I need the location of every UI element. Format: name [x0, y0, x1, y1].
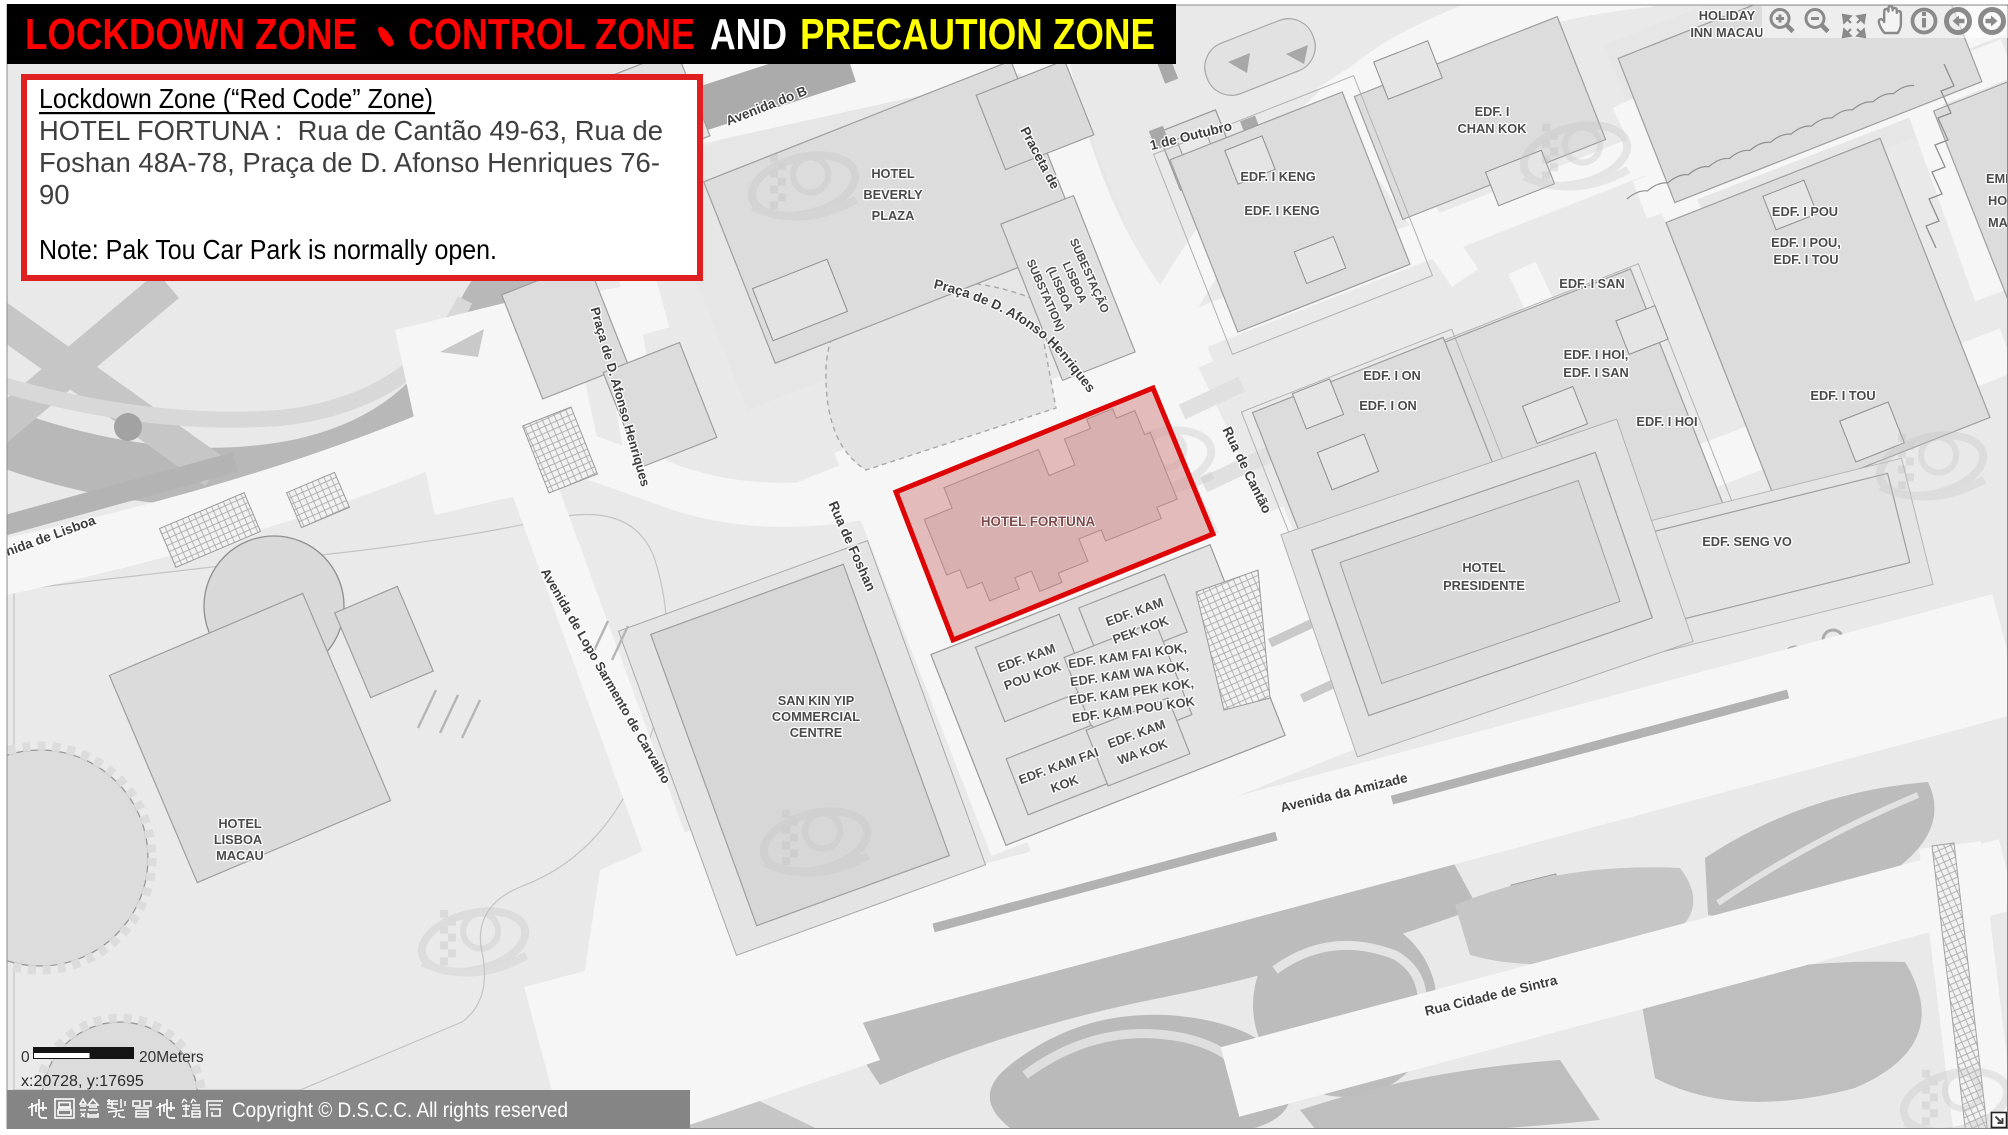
svg-text:CENTRE: CENTRE [790, 725, 843, 740]
svg-text:HO: HO [1988, 193, 2007, 208]
svg-text:HOTEL FORTUNA: HOTEL FORTUNA [981, 514, 1096, 529]
svg-text:x:20728, y:17695: x:20728, y:17695 [21, 1073, 144, 1090]
svg-text:EDF. I POU: EDF. I POU [1772, 204, 1838, 219]
svg-text:HOTEL FORTUNA : Rua de Cantão: HOTEL FORTUNA : Rua de Cantão 49-63, Rua… [39, 115, 663, 146]
svg-text:LISBOA: LISBOA [214, 832, 262, 847]
svg-text:CONTROL ZONE: CONTROL ZONE [408, 10, 695, 59]
svg-text:EDF. I POU,: EDF. I POU, [1771, 235, 1841, 250]
svg-text:EDF. I SAN: EDF. I SAN [1559, 276, 1624, 291]
svg-text:EDF. I ON: EDF. I ON [1363, 368, 1421, 383]
svg-text:COMMERCIAL: COMMERCIAL [772, 709, 860, 724]
svg-text:90: 90 [39, 179, 70, 210]
svg-text:EDF. SENG VO: EDF. SENG VO [1702, 534, 1792, 549]
svg-text:Lockdown Zone (“Red Code” Zone: Lockdown Zone (“Red Code” Zone) [39, 83, 433, 114]
svg-text:EDF. I TOU: EDF. I TOU [1810, 388, 1875, 403]
svg-text:PRECAUTION ZONE: PRECAUTION ZONE [800, 10, 1155, 59]
svg-text:Note: Pak Tou Car Park is norm: Note: Pak Tou Car Park is normally open. [39, 234, 497, 265]
svg-text:HOTEL: HOTEL [1462, 560, 1506, 575]
svg-text:MA: MA [1988, 215, 2008, 230]
svg-text:EDF. I ON: EDF. I ON [1359, 398, 1417, 413]
svg-text:INN MACAU: INN MACAU [1690, 25, 1763, 40]
svg-text:BEVERLY: BEVERLY [863, 187, 923, 202]
svg-text:PRESIDENTE: PRESIDENTE [1443, 578, 1525, 593]
svg-text:0: 0 [21, 1049, 30, 1066]
svg-text:LOCKDOWN ZONE: LOCKDOWN ZONE [25, 10, 357, 59]
svg-text:EDF. I: EDF. I [1475, 104, 1510, 119]
svg-text:MACAU: MACAU [216, 848, 264, 863]
svg-text:HOTEL: HOTEL [871, 166, 915, 181]
svg-text:EDF. I HOI,: EDF. I HOI, [1564, 347, 1629, 362]
svg-text:EDF. I KENG: EDF. I KENG [1240, 169, 1315, 184]
svg-text:AND: AND [710, 10, 787, 59]
svg-text:EDF. I HOI: EDF. I HOI [1636, 414, 1697, 429]
svg-text:HOTEL: HOTEL [218, 816, 262, 831]
svg-text:20Meters: 20Meters [139, 1049, 204, 1066]
svg-text:EDF. I SAN: EDF. I SAN [1563, 365, 1628, 380]
svg-text:PLAZA: PLAZA [872, 208, 915, 223]
svg-text:SAN KIN YIP: SAN KIN YIP [778, 693, 855, 708]
svg-text:Foshan 48A-78, Praça de D. Afo: Foshan 48A-78, Praça de D. Afonso Henriq… [39, 147, 660, 178]
svg-text:HOLIDAY: HOLIDAY [1699, 8, 1756, 23]
svg-text:Copyright © D.S.C.C. All right: Copyright © D.S.C.C. All rights reserved [232, 1098, 568, 1122]
svg-text:EMI: EMI [1986, 171, 2008, 186]
svg-text:EDF. I TOU: EDF. I TOU [1773, 252, 1838, 267]
svg-text:CHAN KOK: CHAN KOK [1458, 121, 1528, 136]
svg-text:EDF. I KENG: EDF. I KENG [1244, 203, 1319, 218]
